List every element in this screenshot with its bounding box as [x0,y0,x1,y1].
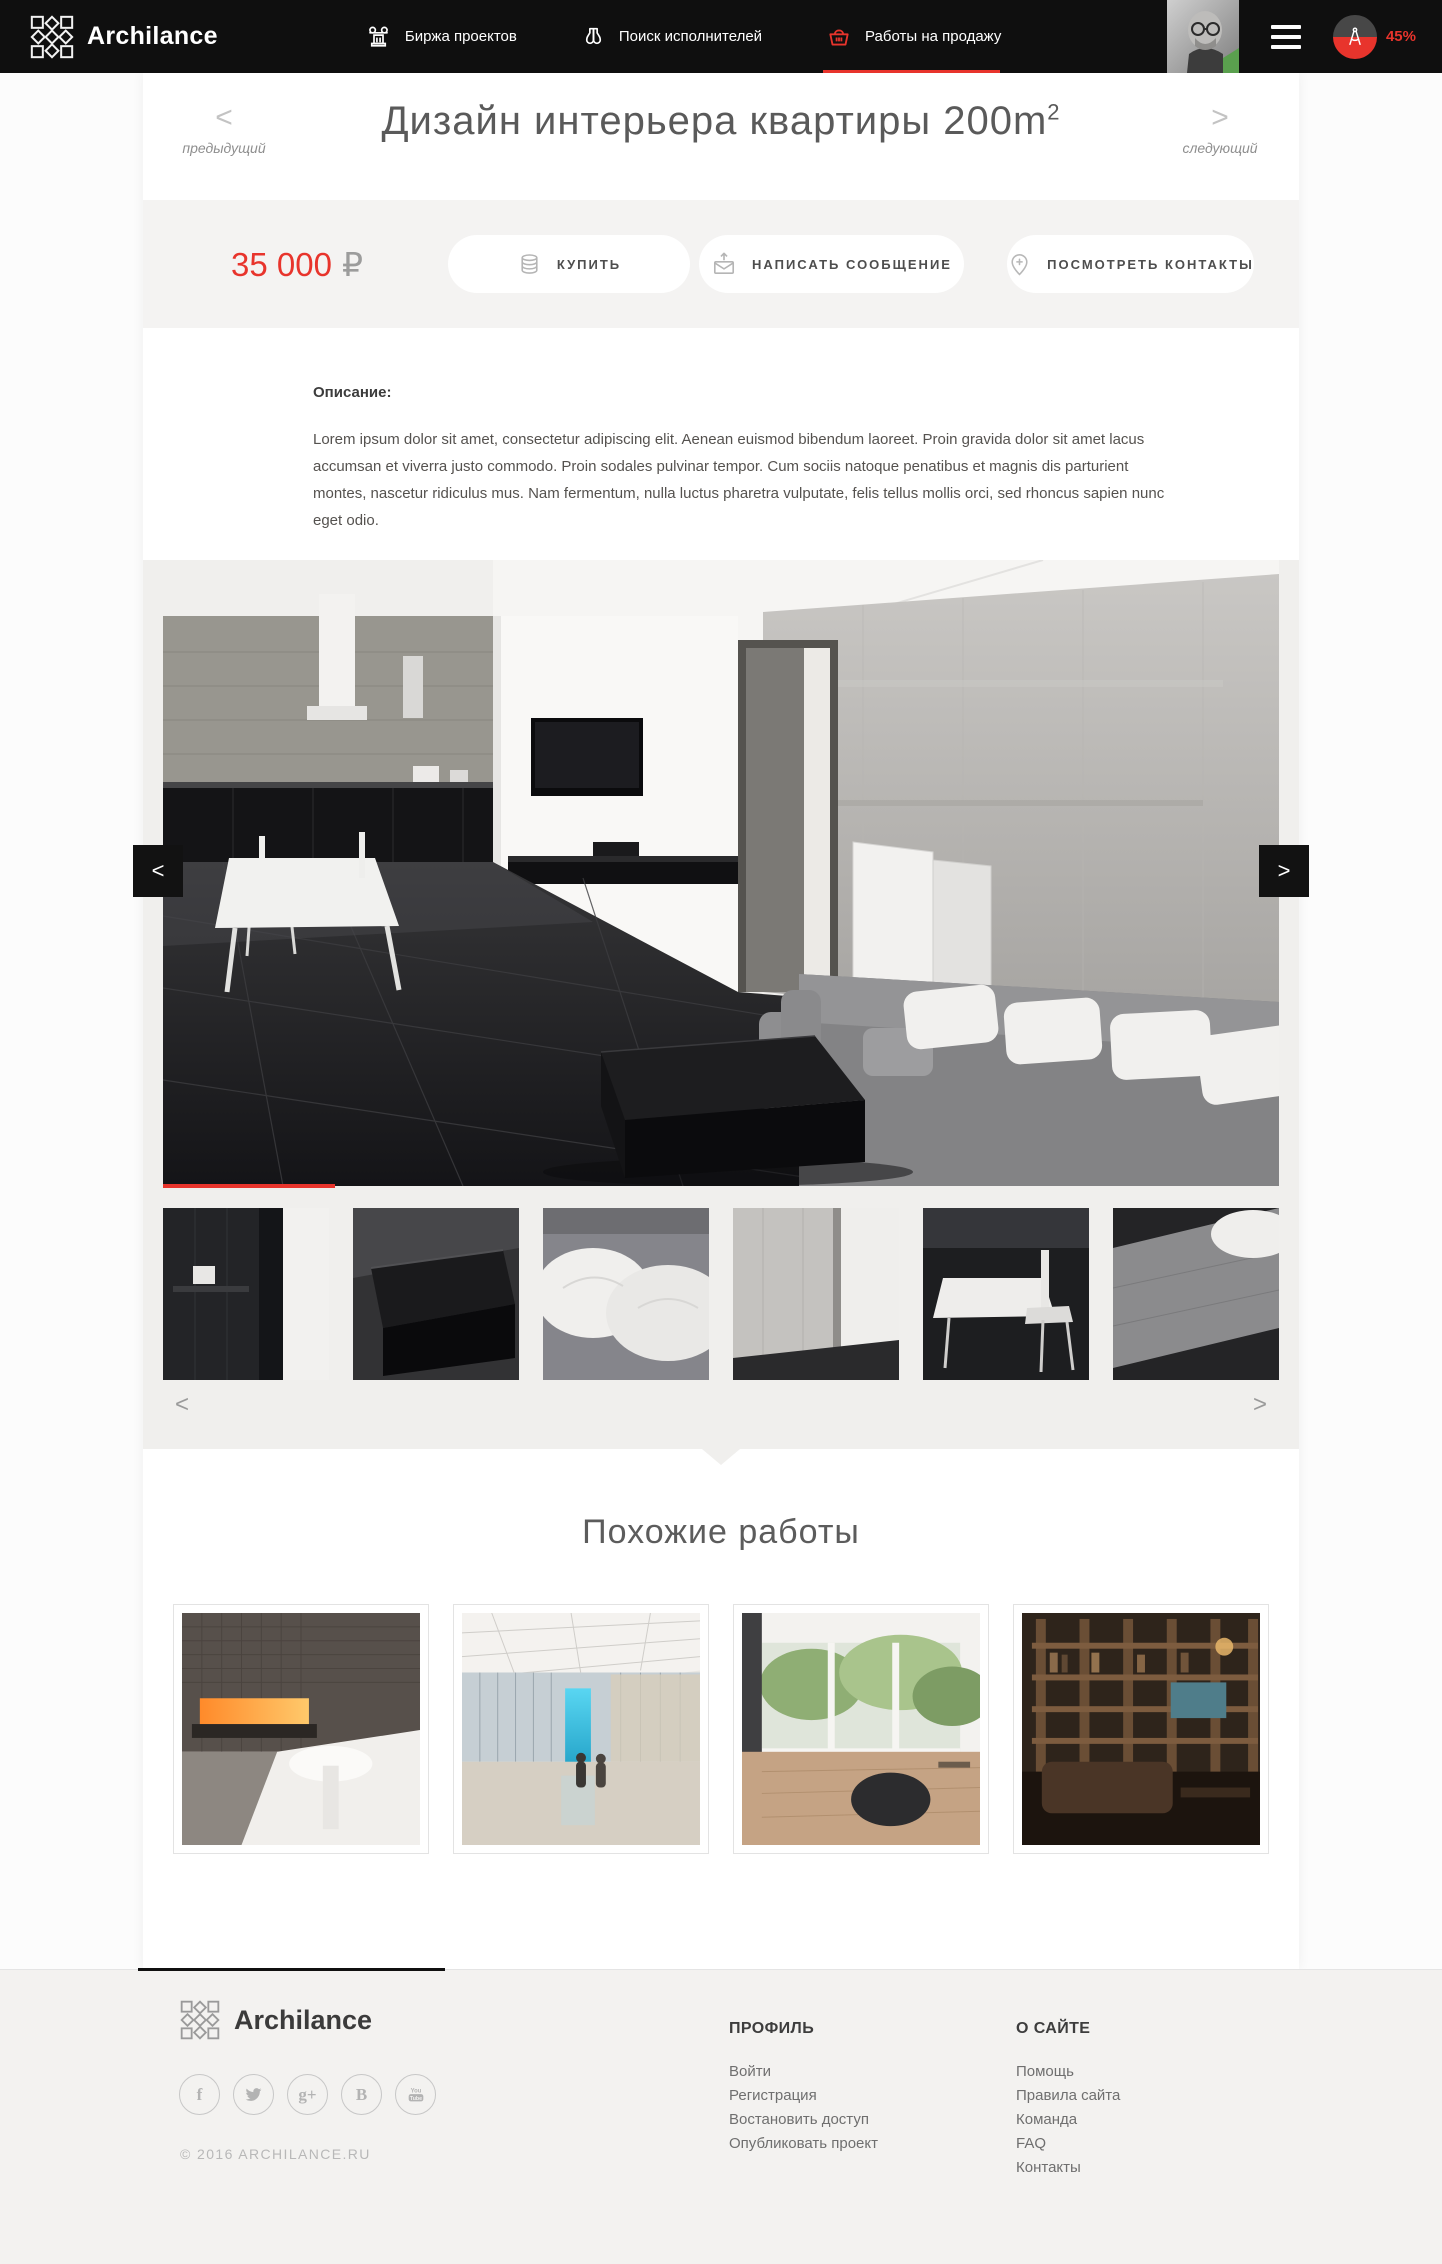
vk-icon[interactable]: B [341,2074,382,2115]
prev-work-pager[interactable]: < предыдущий [159,103,289,156]
next-work-pager[interactable]: > следующий [1155,103,1285,156]
nav-label: Биржа проектов [405,28,517,45]
similar-works-heading: Похожие работы [143,1449,1299,1552]
twitter-bird-icon [244,2085,263,2104]
footer-column-heading: О САЙТЕ [1016,2020,1120,2038]
footer-link-register[interactable]: Регистрация [729,2084,878,2108]
description-section: Описание: Lorem ipsum dolor sit amet, co… [143,328,1299,560]
footer-link-faq[interactable]: FAQ [1016,2132,1120,2156]
nav-label: Работы на продажу [865,28,1001,45]
price: 35 000₽ [231,245,393,284]
footer-column-profile: ПРОФИЛЬ Войти Регистрация Востановить до… [729,2020,878,2156]
similar-works-list [143,1604,1299,1854]
envelope-icon [711,251,737,277]
user-avatar[interactable] [1167,0,1239,73]
view-contacts-button[interactable]: ПОСМОТРЕТЬ КОНТАКТЫ [1007,235,1254,293]
archilance-logo-icon [30,15,74,59]
footer-link-site-rules[interactable]: Правила сайта [1016,2084,1120,2108]
map-pin-icon [1007,252,1032,277]
profile-progress-value: 45% [1386,28,1416,45]
copyright-text: © 2016 ARCHILANCE.RU [180,2146,371,2162]
social-links: f g+ B You Tube [179,2074,436,2115]
brand-logo[interactable]: Archilance [30,15,218,59]
thumbnail-photo [353,1208,519,1380]
gallery-section: < > [143,560,1299,1449]
footer-column-about: О САЙТЕ Помощь Правила сайта Команда FAQ… [1016,2020,1120,2180]
thumbnail-photo [733,1208,899,1380]
purchase-bar: 35 000₽ КУПИТЬ НАПИСАТЬ СОО [143,200,1299,328]
chevron-left-icon[interactable]: < [159,103,289,133]
basket-icon [826,24,852,50]
footer-link-help[interactable]: Помощь [1016,2060,1120,2084]
nav-item-search-performers[interactable]: Поиск исполнителей [558,0,785,73]
gallery-thumbnail-4[interactable] [733,1208,899,1380]
thumbnails-next-arrow[interactable]: > [1253,1393,1267,1417]
twitter-icon[interactable] [233,2074,274,2115]
facebook-icon[interactable]: f [179,2074,220,2115]
nav-item-projects-exchange[interactable]: Биржа проектов [342,0,540,73]
similar-works-section: Похожие работы [143,1449,1299,1969]
interior-photo [163,560,1279,1186]
gallery-thumbnail-5[interactable] [923,1208,1089,1380]
top-header: Archilance Биржа проектов Поиск исполнит… [0,0,1442,73]
similar-work-card-4[interactable] [1013,1604,1269,1854]
similar-work-card-3[interactable] [733,1604,989,1854]
buy-button-label: КУПИТЬ [557,257,621,272]
gallery-next-arrow[interactable]: > [1259,845,1309,897]
gallery-thumbnail-2[interactable] [353,1208,519,1380]
profile-progress-badge[interactable] [1333,15,1377,59]
prev-work-label: предыдущий [159,140,289,156]
chevron-right-icon[interactable]: > [1155,103,1285,133]
thumbnail-nav: < > [163,1380,1279,1442]
description-heading: Описание: [313,384,1299,401]
thumbnails-prev-arrow[interactable]: < [175,1393,189,1417]
footer-link-login[interactable]: Войти [729,2060,878,2084]
work-detail-card: < предыдущий Дизайн интерьера квартиры 2… [143,73,1299,1969]
thumbnail-photo [923,1208,1089,1380]
google-plus-icon[interactable]: g+ [287,2074,328,2115]
brand-name: Archilance [87,22,218,51]
gallery-prev-arrow[interactable]: < [133,845,183,897]
coins-icon [517,252,542,277]
main-gallery-photo[interactable]: < > [163,560,1279,1186]
similar-work-photo [1022,1613,1260,1845]
footer-brand-name: Archilance [234,2005,372,2036]
currency-symbol: ₽ [342,246,363,283]
similar-work-card-2[interactable] [453,1604,709,1854]
hamburger-menu-icon[interactable] [1271,25,1301,49]
page-title: Дизайн интерьера квартиры 200m2 [143,73,1299,144]
send-message-button[interactable]: НАПИСАТЬ СООБЩЕНИЕ [699,235,964,293]
footer: Archilance f g+ B You Tube © 2016 ARCHIL… [0,1969,1442,2264]
youtube-logo-icon: You Tube [405,2084,427,2106]
next-work-label: следующий [1155,140,1285,156]
thumbnail-photo [1113,1208,1279,1380]
buy-button[interactable]: КУПИТЬ [448,235,690,293]
main-nav: Биржа проектов Поиск исполнителей Работы… [342,0,1025,73]
similar-work-photo [182,1613,420,1845]
compass-icon [1344,25,1366,49]
gallery-thumbnail-1[interactable] [163,1208,329,1380]
description-text: Lorem ipsum dolor sit amet, consectetur … [313,426,1178,534]
archilance-footer-logo-icon [180,2000,220,2040]
thumbnail-photo [543,1208,709,1380]
view-contacts-button-label: ПОСМОТРЕТЬ КОНТАКТЫ [1047,257,1254,272]
column-icon [365,23,392,50]
gallery-thumbnail-3[interactable] [543,1208,709,1380]
nav-label: Поиск исполнителей [619,28,762,45]
nav-item-works-for-sale[interactable]: Работы на продажу [803,0,1024,73]
similar-work-photo [742,1613,980,1845]
footer-brand[interactable]: Archilance [180,2000,372,2040]
footer-link-contacts[interactable]: Контакты [1016,2156,1120,2180]
thumbnail-photo [163,1208,329,1380]
footer-link-team[interactable]: Команда [1016,2108,1120,2132]
youtube-icon[interactable]: You Tube [395,2074,436,2115]
title-section: < предыдущий Дизайн интерьера квартиры 2… [143,73,1299,200]
svg-text:Tube: Tube [409,2095,421,2101]
footer-column-heading: ПРОФИЛЬ [729,2020,878,2038]
header-right-cluster: 45% [1167,0,1442,73]
gallery-progress-bar [163,1184,335,1188]
gallery-thumbnail-6[interactable] [1113,1208,1279,1380]
avatar-photo [1167,0,1239,73]
similar-work-photo [462,1613,700,1845]
svg-text:You: You [410,2088,421,2094]
thumbnail-strip [163,1208,1279,1380]
footer-link-publish-project[interactable]: Опубликовать проект [729,2132,878,2156]
binoculars-icon [581,24,606,49]
similar-work-card-1[interactable] [173,1604,429,1854]
footer-link-restore-access[interactable]: Востановить доступ [729,2108,878,2132]
send-message-button-label: НАПИСАТЬ СООБЩЕНИЕ [752,257,952,272]
